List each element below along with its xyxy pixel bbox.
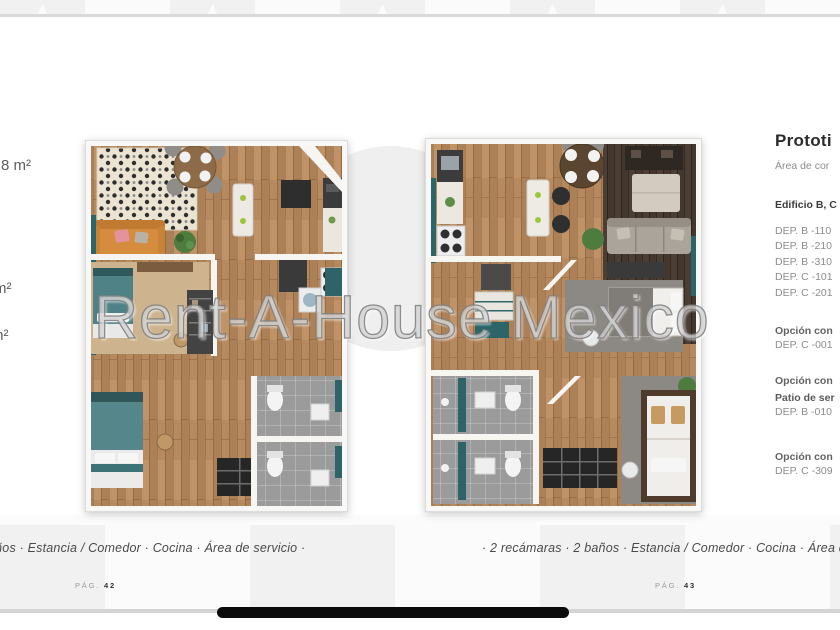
bottom-zigzag-pattern	[0, 515, 840, 609]
interior-wall	[255, 254, 342, 260]
kitchen-island	[233, 184, 253, 236]
dep-item: DEP. C -201	[775, 287, 833, 299]
bench-cushion	[632, 174, 680, 212]
option-dep: DEP. C -309	[775, 465, 833, 477]
building-heading: Edificio B, C	[775, 199, 837, 211]
sofa-orange	[93, 220, 165, 254]
interior-wall	[533, 376, 539, 504]
stove-burners	[437, 226, 465, 256]
dep-item: DEP. C -101	[775, 271, 833, 283]
caption-right: · 2 recámaras · 2 baños · Estancia / Com…	[482, 541, 840, 555]
option-patio: Patio de ser	[775, 392, 835, 404]
option-label: Opción con	[775, 451, 833, 463]
dep-item: DEP. B -310	[775, 256, 832, 268]
sofa-gray	[607, 218, 691, 254]
kitchen-counter	[323, 178, 342, 252]
stool	[157, 434, 173, 450]
teal-wall-accent	[431, 178, 436, 263]
bedroom-dresser	[137, 262, 193, 272]
area-label-1: 8 m²	[1, 157, 31, 174]
kitchen-sink-unit	[437, 150, 463, 182]
interior-wall	[91, 254, 215, 260]
panel-title: Prototi	[775, 131, 832, 151]
area-label-3: m²	[0, 327, 9, 344]
option-dep: DEP. B -010	[775, 406, 832, 418]
kitchen-counter	[437, 182, 463, 224]
pag-number: 42	[104, 581, 116, 590]
dep-item: DEP. B -110	[775, 225, 831, 237]
caption-left: años · Estancia / Comedor · Cocina · Áre…	[0, 541, 305, 555]
tv-console	[625, 146, 683, 170]
dining-table	[560, 138, 604, 188]
page-number-right: PÁG. 43	[655, 581, 696, 590]
plant	[582, 228, 604, 250]
top-divider-line	[0, 14, 840, 17]
kitchen-appliance	[281, 180, 311, 208]
listing-page: 8 m² m² m² Prototi Área de cor Edificio …	[0, 0, 840, 630]
top-zigzag-pattern	[0, 0, 840, 14]
bathrooms	[251, 376, 342, 506]
plant	[174, 231, 196, 253]
pag-label: PÁG.	[75, 581, 100, 590]
pag-number: 43	[684, 581, 696, 590]
dining-table	[165, 140, 226, 196]
option-dep: DEP. C -001	[775, 339, 833, 351]
watermark-text: Rent-A-House Mexico	[94, 282, 710, 352]
dark-dresser-grid	[543, 448, 617, 488]
interior-wall	[431, 256, 561, 262]
option-label: Opción con	[775, 325, 833, 337]
bedroom-master	[621, 376, 696, 504]
home-indicator-handle[interactable]	[217, 607, 569, 618]
page-number-left: PÁG. 42	[75, 581, 116, 590]
bathrooms	[433, 376, 533, 504]
pag-label: PÁG.	[655, 581, 680, 590]
area-label-2: m²	[0, 280, 12, 297]
dep-item: DEP. B -210	[775, 240, 832, 252]
bed-teal-master	[91, 392, 143, 488]
panel-subtitle: Área de cor	[775, 160, 829, 172]
option-label: Opción con	[775, 375, 833, 387]
interior-wall	[431, 370, 539, 376]
